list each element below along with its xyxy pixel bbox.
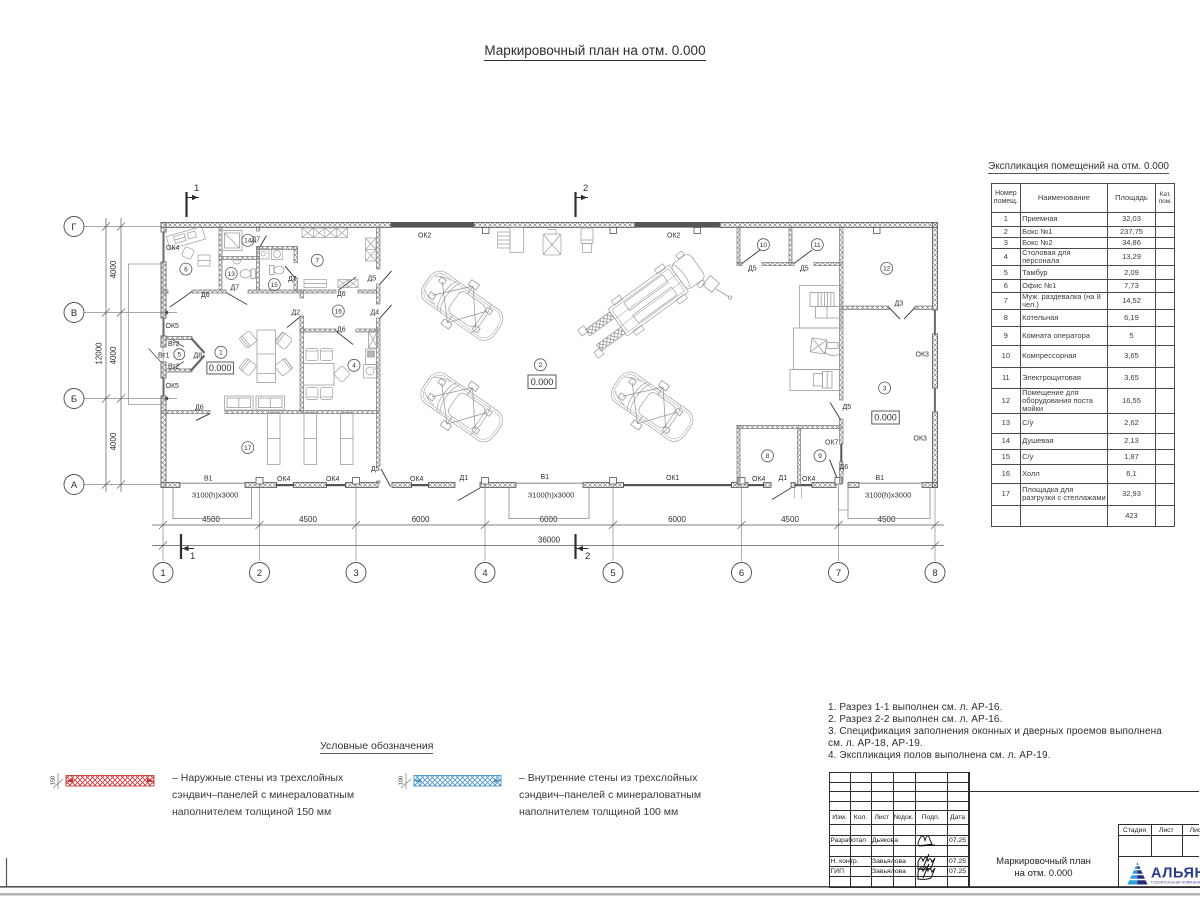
svg-text:36000: 36000 — [538, 536, 561, 545]
svg-text:Д6: Д6 — [201, 292, 210, 299]
svg-text:17: 17 — [244, 445, 252, 452]
svg-text:2: 2 — [257, 568, 262, 579]
svg-text:2: 2 — [539, 362, 543, 369]
svg-text:Д7: Д7 — [288, 276, 297, 283]
svg-text:3: 3 — [883, 385, 887, 392]
svg-text:6000: 6000 — [668, 515, 686, 524]
svg-text:0.000: 0.000 — [209, 363, 232, 373]
svg-text:4000: 4000 — [109, 346, 118, 364]
svg-text:6000: 6000 — [540, 515, 558, 524]
svg-text:4000: 4000 — [109, 432, 118, 450]
svg-text:Д6: Д6 — [337, 327, 346, 334]
svg-text:11: 11 — [814, 242, 821, 249]
svg-text:В1: В1 — [541, 474, 550, 481]
svg-text:5: 5 — [610, 568, 615, 579]
svg-text:ОК7: ОК7 — [825, 440, 839, 447]
svg-text:4: 4 — [352, 363, 356, 370]
svg-text:10: 10 — [760, 242, 768, 249]
svg-text:ОК4: ОК4 — [277, 476, 291, 483]
svg-text:5: 5 — [177, 352, 181, 359]
svg-text:Вт2: Вт2 — [168, 341, 180, 348]
svg-text:12000: 12000 — [95, 342, 104, 365]
svg-text:Д6: Д6 — [840, 464, 849, 471]
svg-text:Д5: Д5 — [843, 404, 852, 411]
svg-text:1: 1 — [160, 568, 165, 579]
svg-text:3100(h)х3000: 3100(h)х3000 — [192, 491, 238, 500]
svg-text:7: 7 — [836, 568, 841, 579]
svg-text:16: 16 — [335, 308, 343, 315]
svg-text:ОК5: ОК5 — [166, 383, 180, 390]
svg-text:6: 6 — [184, 266, 188, 273]
svg-text:Д7: Д7 — [231, 285, 240, 292]
svg-text:0.000: 0.000 — [874, 413, 897, 423]
svg-text:3100(h)х3000: 3100(h)х3000 — [865, 491, 911, 500]
svg-text:ОК1: ОК1 — [666, 475, 680, 482]
svg-text:Д5: Д5 — [368, 276, 377, 283]
svg-text:13: 13 — [228, 271, 236, 278]
svg-text:ОК3: ОК3 — [914, 436, 928, 443]
svg-text:4000: 4000 — [109, 260, 118, 278]
svg-text:3: 3 — [353, 568, 358, 579]
svg-text:8: 8 — [766, 453, 770, 460]
svg-text:2: 2 — [585, 551, 590, 562]
svg-text:4500: 4500 — [781, 515, 799, 524]
svg-text:Д1: Д1 — [460, 475, 469, 482]
svg-text:1: 1 — [219, 350, 223, 357]
svg-text:строительная компания: строительная компания — [1151, 880, 1200, 885]
svg-text:ОК4: ОК4 — [326, 476, 340, 483]
svg-text:12: 12 — [883, 266, 891, 273]
svg-text:150: 150 — [51, 776, 57, 785]
svg-text:9: 9 — [818, 453, 822, 460]
svg-text:ОК4: ОК4 — [166, 245, 180, 252]
svg-text:6: 6 — [739, 568, 744, 579]
svg-text:4500: 4500 — [299, 515, 317, 524]
svg-text:ОК4: ОК4 — [802, 476, 816, 483]
svg-text:6000: 6000 — [412, 515, 430, 524]
svg-text:Д3: Д3 — [895, 301, 904, 308]
svg-text:2: 2 — [583, 183, 588, 194]
svg-text:В: В — [71, 308, 77, 319]
svg-text:Д4: Д4 — [371, 310, 380, 317]
svg-text:ОК5: ОК5 — [166, 323, 180, 330]
svg-text:А: А — [71, 480, 78, 491]
svg-text:Д8: Д8 — [194, 353, 203, 360]
svg-text:Д6: Д6 — [337, 291, 346, 298]
svg-text:ОК3: ОК3 — [916, 352, 930, 359]
svg-text:ОК2: ОК2 — [418, 233, 432, 240]
svg-text:Д5: Д5 — [748, 266, 757, 273]
svg-text:Б: Б — [71, 394, 77, 405]
svg-text:Г: Г — [71, 222, 76, 233]
svg-text:Вт1: Вт1 — [158, 353, 170, 360]
svg-text:В1: В1 — [876, 475, 885, 482]
svg-text:Д5: Д5 — [371, 466, 380, 473]
svg-text:ОК4: ОК4 — [752, 476, 766, 483]
svg-text:0.000: 0.000 — [531, 377, 554, 387]
svg-text:15: 15 — [271, 282, 279, 289]
svg-text:Д5: Д5 — [800, 266, 809, 273]
svg-text:Вт2: Вт2 — [168, 364, 180, 371]
svg-text:7: 7 — [315, 258, 319, 265]
svg-text:4500: 4500 — [878, 515, 896, 524]
svg-text:1: 1 — [194, 183, 199, 194]
svg-text:Д7: Д7 — [252, 237, 261, 244]
svg-text:4500: 4500 — [202, 515, 220, 524]
svg-text:4: 4 — [482, 568, 487, 579]
svg-text:ОК4: ОК4 — [410, 476, 424, 483]
svg-text:ОК2: ОК2 — [667, 233, 681, 240]
svg-text:1: 1 — [190, 551, 195, 562]
svg-text:Д2: Д2 — [292, 310, 301, 317]
svg-text:Д6: Д6 — [195, 405, 204, 412]
svg-text:Д1: Д1 — [779, 475, 788, 482]
svg-text:100: 100 — [399, 776, 405, 785]
svg-text:8: 8 — [932, 568, 937, 579]
svg-text:3100(h)х3000: 3100(h)х3000 — [528, 491, 574, 500]
svg-text:В1: В1 — [204, 476, 213, 483]
